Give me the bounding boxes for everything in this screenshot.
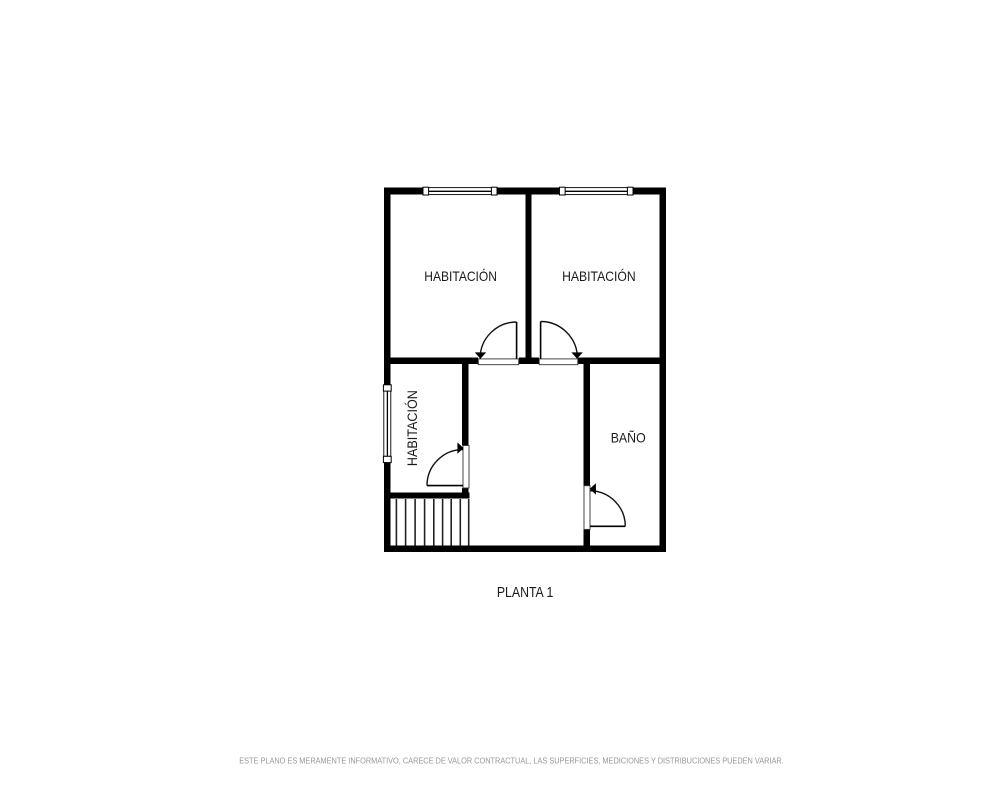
svg-text:HABITACIÓN: HABITACIÓN — [562, 268, 636, 284]
svg-text:PLANTA 1: PLANTA 1 — [497, 585, 554, 601]
svg-text:ESTE PLANO ES MERAMENTE INFORM: ESTE PLANO ES MERAMENTE INFORMATIVO, CAR… — [239, 756, 784, 766]
svg-text:BAÑO: BAÑO — [611, 430, 646, 446]
svg-text:HABITACIÓN: HABITACIÓN — [404, 390, 420, 466]
svg-text:HABITACIÓN: HABITACIÓN — [424, 268, 497, 284]
